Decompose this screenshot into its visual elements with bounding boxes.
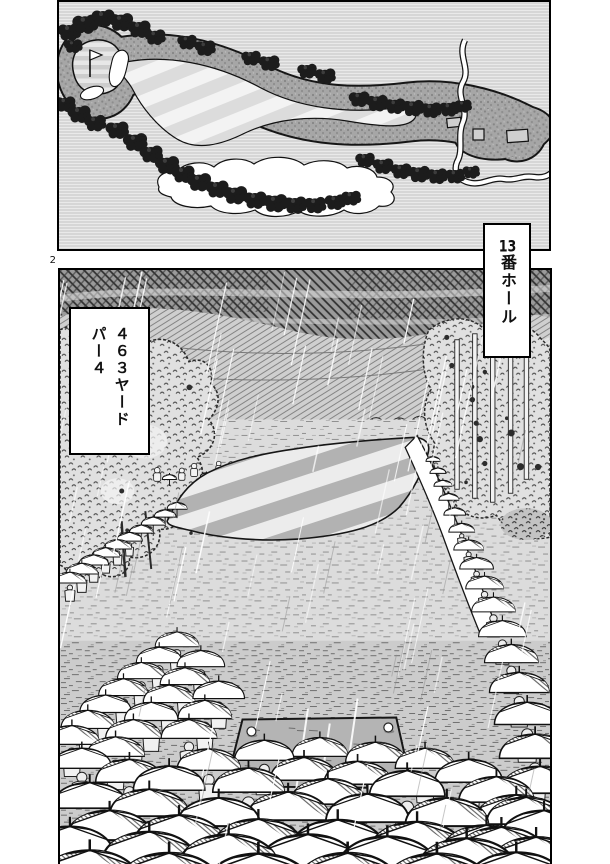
yardage-par-box: ４６３ヤードパー４ (69, 307, 150, 455)
manga-page: 2 (0, 0, 610, 864)
page-number: 2 (44, 255, 56, 266)
par-label: パー４ (86, 326, 109, 428)
hole-label-text: 13番ホール (499, 225, 515, 326)
panel-hole-map (57, 0, 551, 251)
yardage-par-text: ４６３ヤードパー４ (86, 309, 133, 428)
hole-number: 13 (498, 238, 517, 254)
hole-map-illustration (59, 2, 549, 249)
yardage-label: ４６３ヤード (110, 326, 133, 428)
hole-label-box: 13番ホール (483, 223, 531, 358)
hole-suffix: 番ホール (498, 254, 517, 326)
